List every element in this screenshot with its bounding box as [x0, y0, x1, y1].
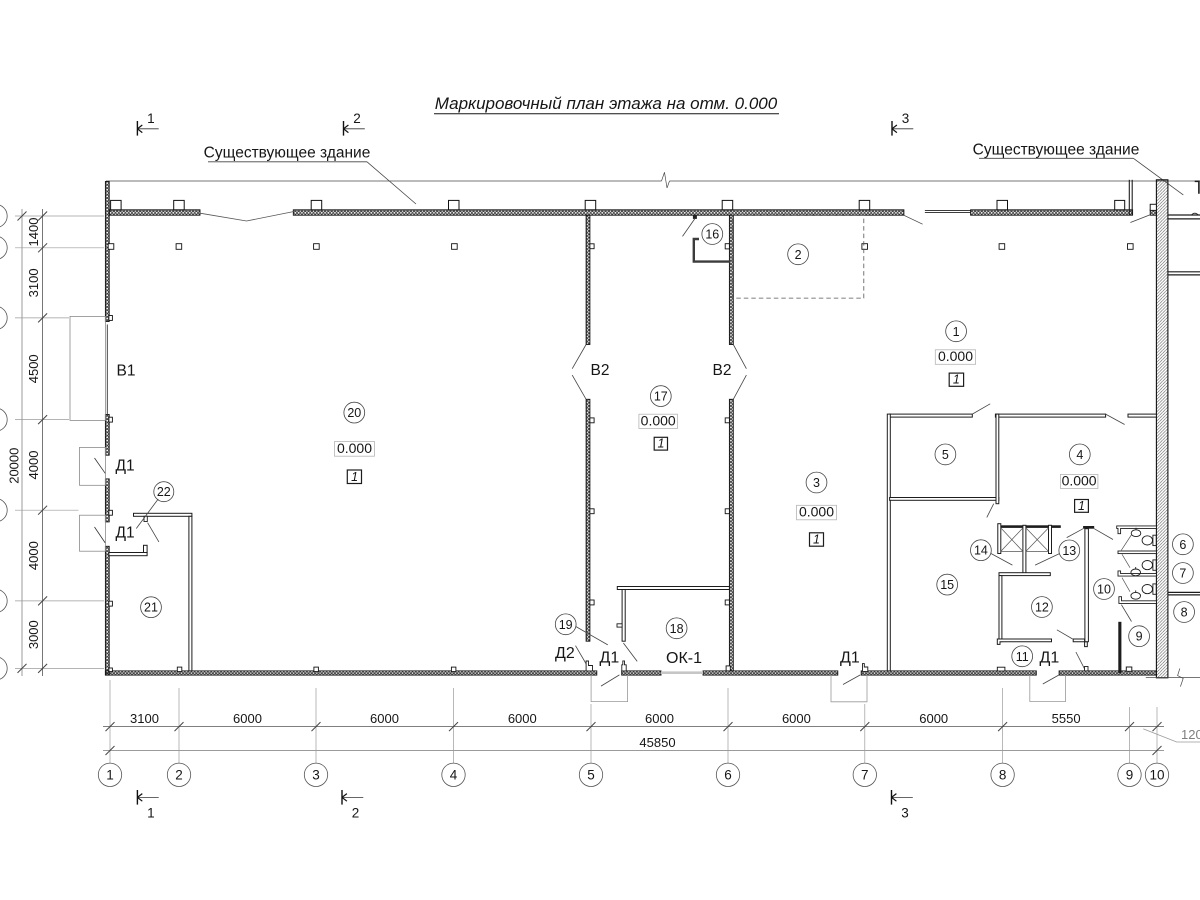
svg-text:17: 17 [654, 390, 668, 404]
svg-text:5550: 5550 [1052, 711, 1081, 726]
svg-text:1: 1 [1078, 499, 1085, 513]
svg-text:7: 7 [1179, 567, 1186, 581]
svg-text:В1: В1 [117, 363, 136, 380]
svg-text:20: 20 [347, 406, 361, 420]
svg-text:0.000: 0.000 [799, 504, 834, 520]
svg-text:6: 6 [724, 768, 732, 783]
svg-text:21: 21 [144, 601, 158, 615]
svg-text:6000: 6000 [233, 711, 262, 726]
svg-text:4500: 4500 [26, 354, 41, 383]
svg-text:22: 22 [157, 485, 171, 499]
svg-text:2: 2 [795, 248, 802, 262]
svg-text:5: 5 [942, 448, 949, 462]
svg-text:0.000: 0.000 [1062, 473, 1097, 489]
svg-text:3: 3 [813, 476, 820, 490]
svg-text:7: 7 [861, 768, 869, 783]
svg-text:6: 6 [1179, 538, 1186, 552]
svg-text:1200: 1200 [1181, 727, 1200, 742]
svg-text:1: 1 [147, 111, 155, 126]
svg-text:4: 4 [1076, 448, 1083, 462]
svg-text:2: 2 [352, 806, 360, 821]
svg-text:В2: В2 [713, 362, 732, 379]
svg-text:19: 19 [559, 618, 573, 632]
svg-text:Существующее здание: Существующее здание [204, 145, 371, 162]
svg-text:12: 12 [1035, 601, 1049, 615]
svg-text:В2: В2 [591, 362, 610, 379]
svg-text:0.000: 0.000 [337, 440, 372, 456]
svg-text:1400: 1400 [26, 218, 41, 247]
svg-text:1: 1 [106, 768, 114, 783]
svg-text:1: 1 [953, 373, 960, 387]
svg-text:Д1: Д1 [840, 650, 860, 667]
svg-text:0.000: 0.000 [641, 413, 676, 429]
svg-text:Д2: Д2 [555, 645, 575, 662]
svg-text:1: 1 [147, 806, 155, 821]
svg-text:1: 1 [953, 325, 960, 339]
svg-text:Существующее здание: Существующее здание [973, 142, 1140, 159]
svg-text:1: 1 [658, 437, 665, 451]
svg-text:3: 3 [902, 111, 910, 126]
svg-text:6000: 6000 [508, 711, 537, 726]
svg-text:10: 10 [1149, 768, 1164, 783]
svg-text:3000: 3000 [26, 620, 41, 649]
svg-text:14: 14 [974, 544, 988, 558]
svg-text:6000: 6000 [919, 711, 948, 726]
svg-text:0.000: 0.000 [938, 348, 973, 364]
svg-text:1: 1 [351, 470, 358, 484]
svg-text:3: 3 [901, 806, 909, 821]
svg-text:Д1: Д1 [116, 525, 135, 542]
svg-text:20000: 20000 [6, 448, 21, 484]
svg-text:6000: 6000 [370, 711, 399, 726]
svg-text:Д1: Д1 [1040, 650, 1060, 667]
svg-text:11: 11 [1016, 650, 1029, 664]
svg-text:6000: 6000 [645, 711, 674, 726]
svg-text:18: 18 [670, 622, 684, 636]
svg-text:8: 8 [1181, 606, 1188, 620]
svg-text:13: 13 [1062, 544, 1076, 558]
svg-text:10: 10 [1097, 583, 1111, 597]
svg-text:45850: 45850 [639, 735, 675, 750]
svg-text:ОК-1: ОК-1 [666, 650, 702, 667]
svg-text:Д1: Д1 [600, 650, 620, 667]
svg-text:2: 2 [353, 111, 361, 126]
svg-text:3: 3 [312, 768, 320, 783]
svg-text:Маркировочный план этажа на от: Маркировочный план этажа на отм. 0.000 [435, 94, 778, 113]
svg-text:4000: 4000 [26, 541, 41, 570]
svg-text:6000: 6000 [782, 711, 811, 726]
svg-text:2: 2 [175, 768, 183, 783]
svg-text:9: 9 [1126, 768, 1134, 783]
svg-text:1: 1 [813, 533, 820, 547]
svg-text:4: 4 [450, 768, 458, 783]
svg-text:15: 15 [940, 578, 954, 592]
svg-text:3100: 3100 [130, 711, 159, 726]
svg-text:16: 16 [705, 228, 719, 242]
svg-text:8: 8 [999, 768, 1007, 783]
svg-text:9: 9 [1136, 630, 1143, 644]
svg-text:5: 5 [587, 768, 595, 783]
svg-text:3100: 3100 [26, 268, 41, 297]
svg-text:Д1: Д1 [116, 458, 135, 475]
svg-text:4000: 4000 [26, 451, 41, 480]
